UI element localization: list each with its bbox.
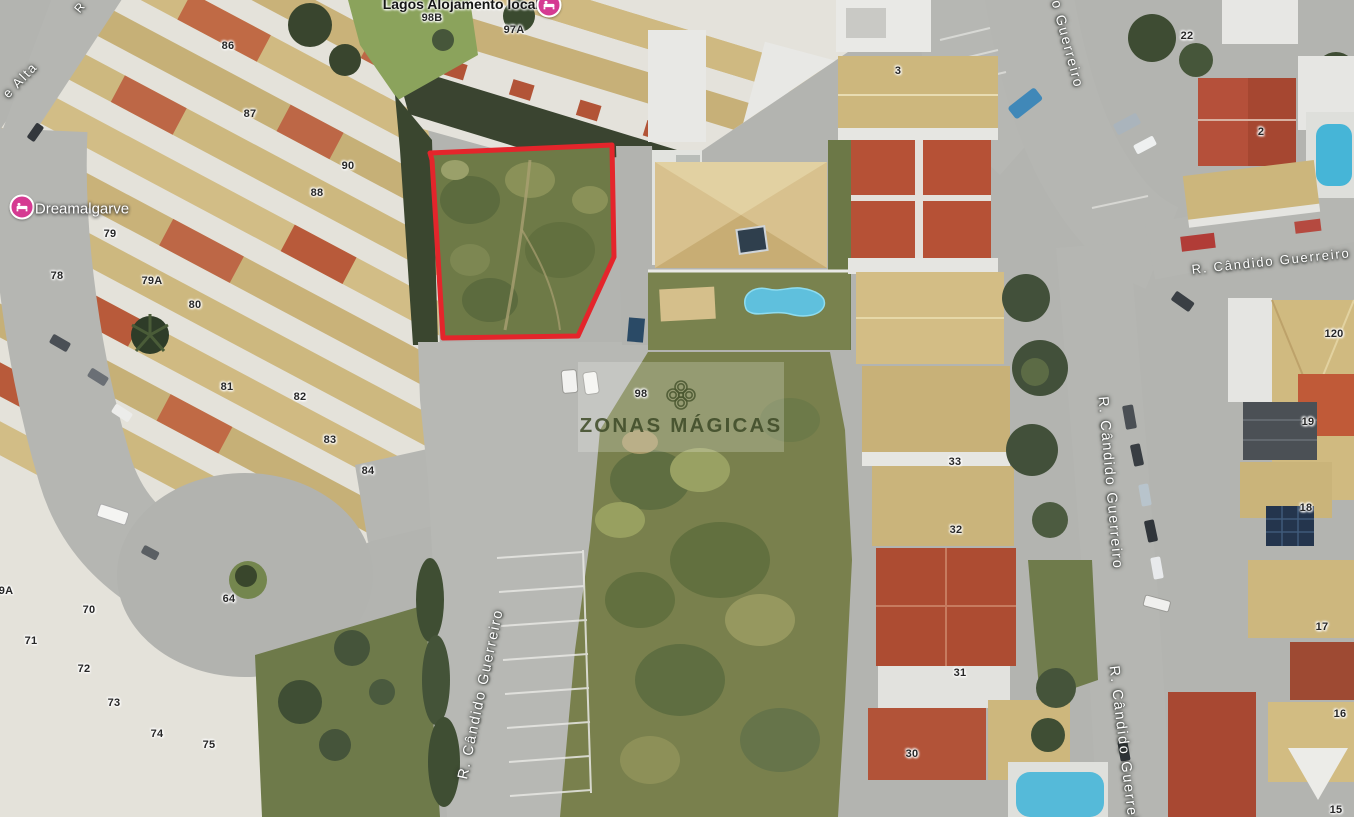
swimming-pool-top-right	[1316, 124, 1352, 186]
red-plot	[430, 145, 614, 338]
satellite-map-canvas[interactable]: Lagos Alojamento local Dreamalgarve	[0, 0, 1354, 817]
swimming-pool-center	[745, 288, 825, 316]
skylight	[736, 226, 767, 254]
swimming-pool-bottom	[1016, 772, 1104, 817]
satellite-imagery	[0, 0, 1354, 817]
